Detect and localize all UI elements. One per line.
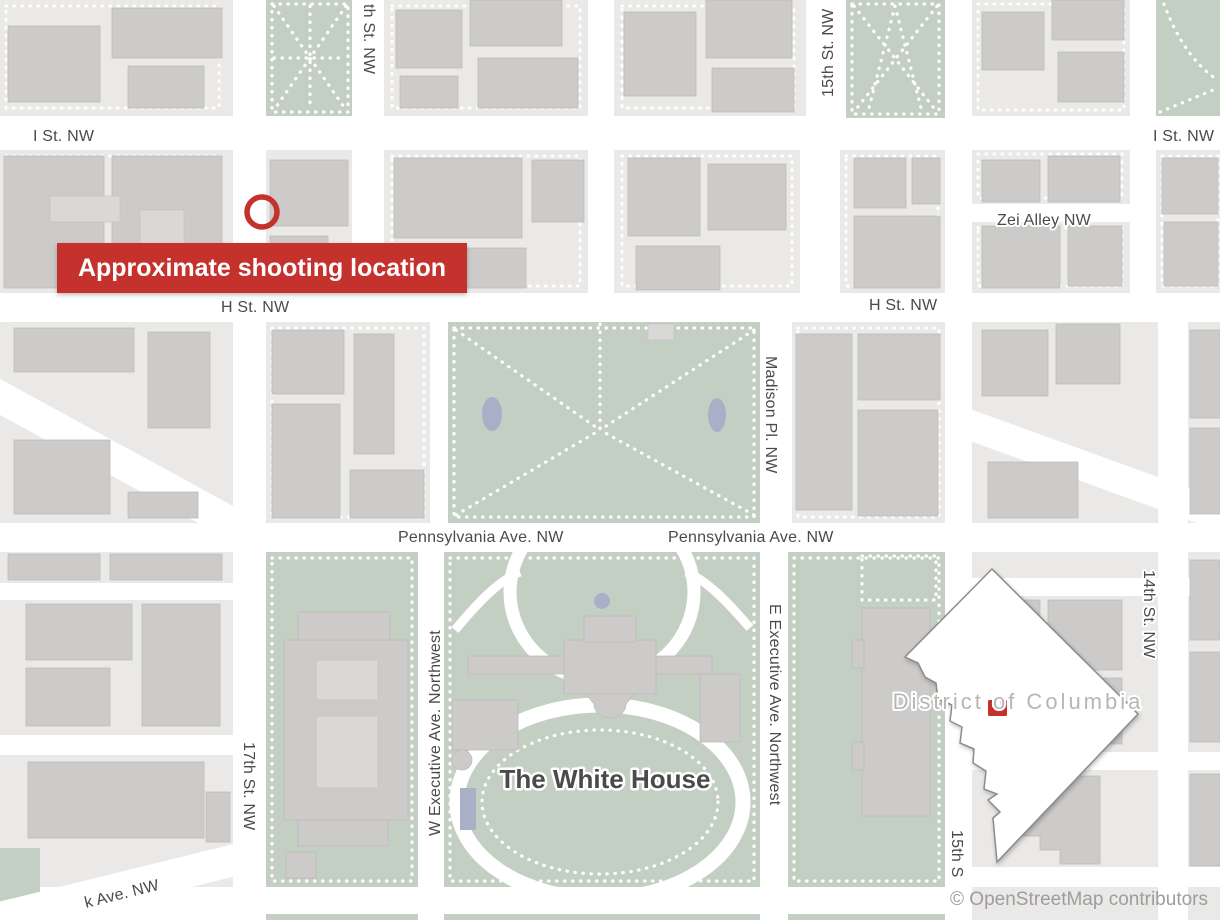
state-place-street [233,887,945,914]
street-label-15th-st-nw-bottom: 15th S [948,830,965,877]
place-label-white-house: The White House [500,764,711,794]
east-wing-building [700,674,740,742]
park-top-right [1156,0,1220,116]
news-map-graphic: I St. NW I St. NW th St. NW 15th St. NW … [0,0,1220,920]
street-label-i-st-nw-right: I St. NW [1153,128,1215,145]
street-label-e-executive-ave: E Executive Ave. Northwest [766,604,783,806]
map-canvas: I St. NW I St. NW th St. NW 15th St. NW … [0,0,1220,920]
map-attribution: © OpenStreetMap contributors [950,889,1208,910]
eob-building [284,612,408,846]
street-label-pennsylvania-ave-right: Pennsylvania Ave. NW [668,529,834,546]
callout: Approximate shooting location [57,243,467,293]
street-label-h-st-nw-left: H St. NW [221,299,290,316]
street-label-15th-st-nw-top: 15th St. NW [820,8,837,97]
street-label-pennsylvania-ave-left: Pennsylvania Ave. NW [398,529,564,546]
street-label-14th-st-nw: 14th St. NW [1140,570,1157,659]
street-label-zei-alley-nw: Zei Alley NW [997,212,1092,229]
street-label-17th-st-nw: 17th St. NW [240,742,257,831]
street-label-w-executive-ave: W Executive Ave. Northwest [427,630,444,836]
street-label-i-st-nw-left: I St. NW [33,128,95,145]
west-terrace-building [452,700,518,750]
fountain-west [482,397,502,431]
street-label-16th-st-nw: th St. NW [360,4,377,75]
place-label-district-of-columbia: District of Columbia [893,689,1144,714]
north-fountain [594,593,610,609]
callout-label: Approximate shooting location [78,254,446,282]
fountain-east [708,398,726,432]
street-label-madison-pl-nw: Madison Pl. NW [762,356,779,474]
street-label-h-st-nw-right: H St. NW [869,297,938,314]
park-mcpherson-square [846,0,945,118]
pool [460,788,476,830]
